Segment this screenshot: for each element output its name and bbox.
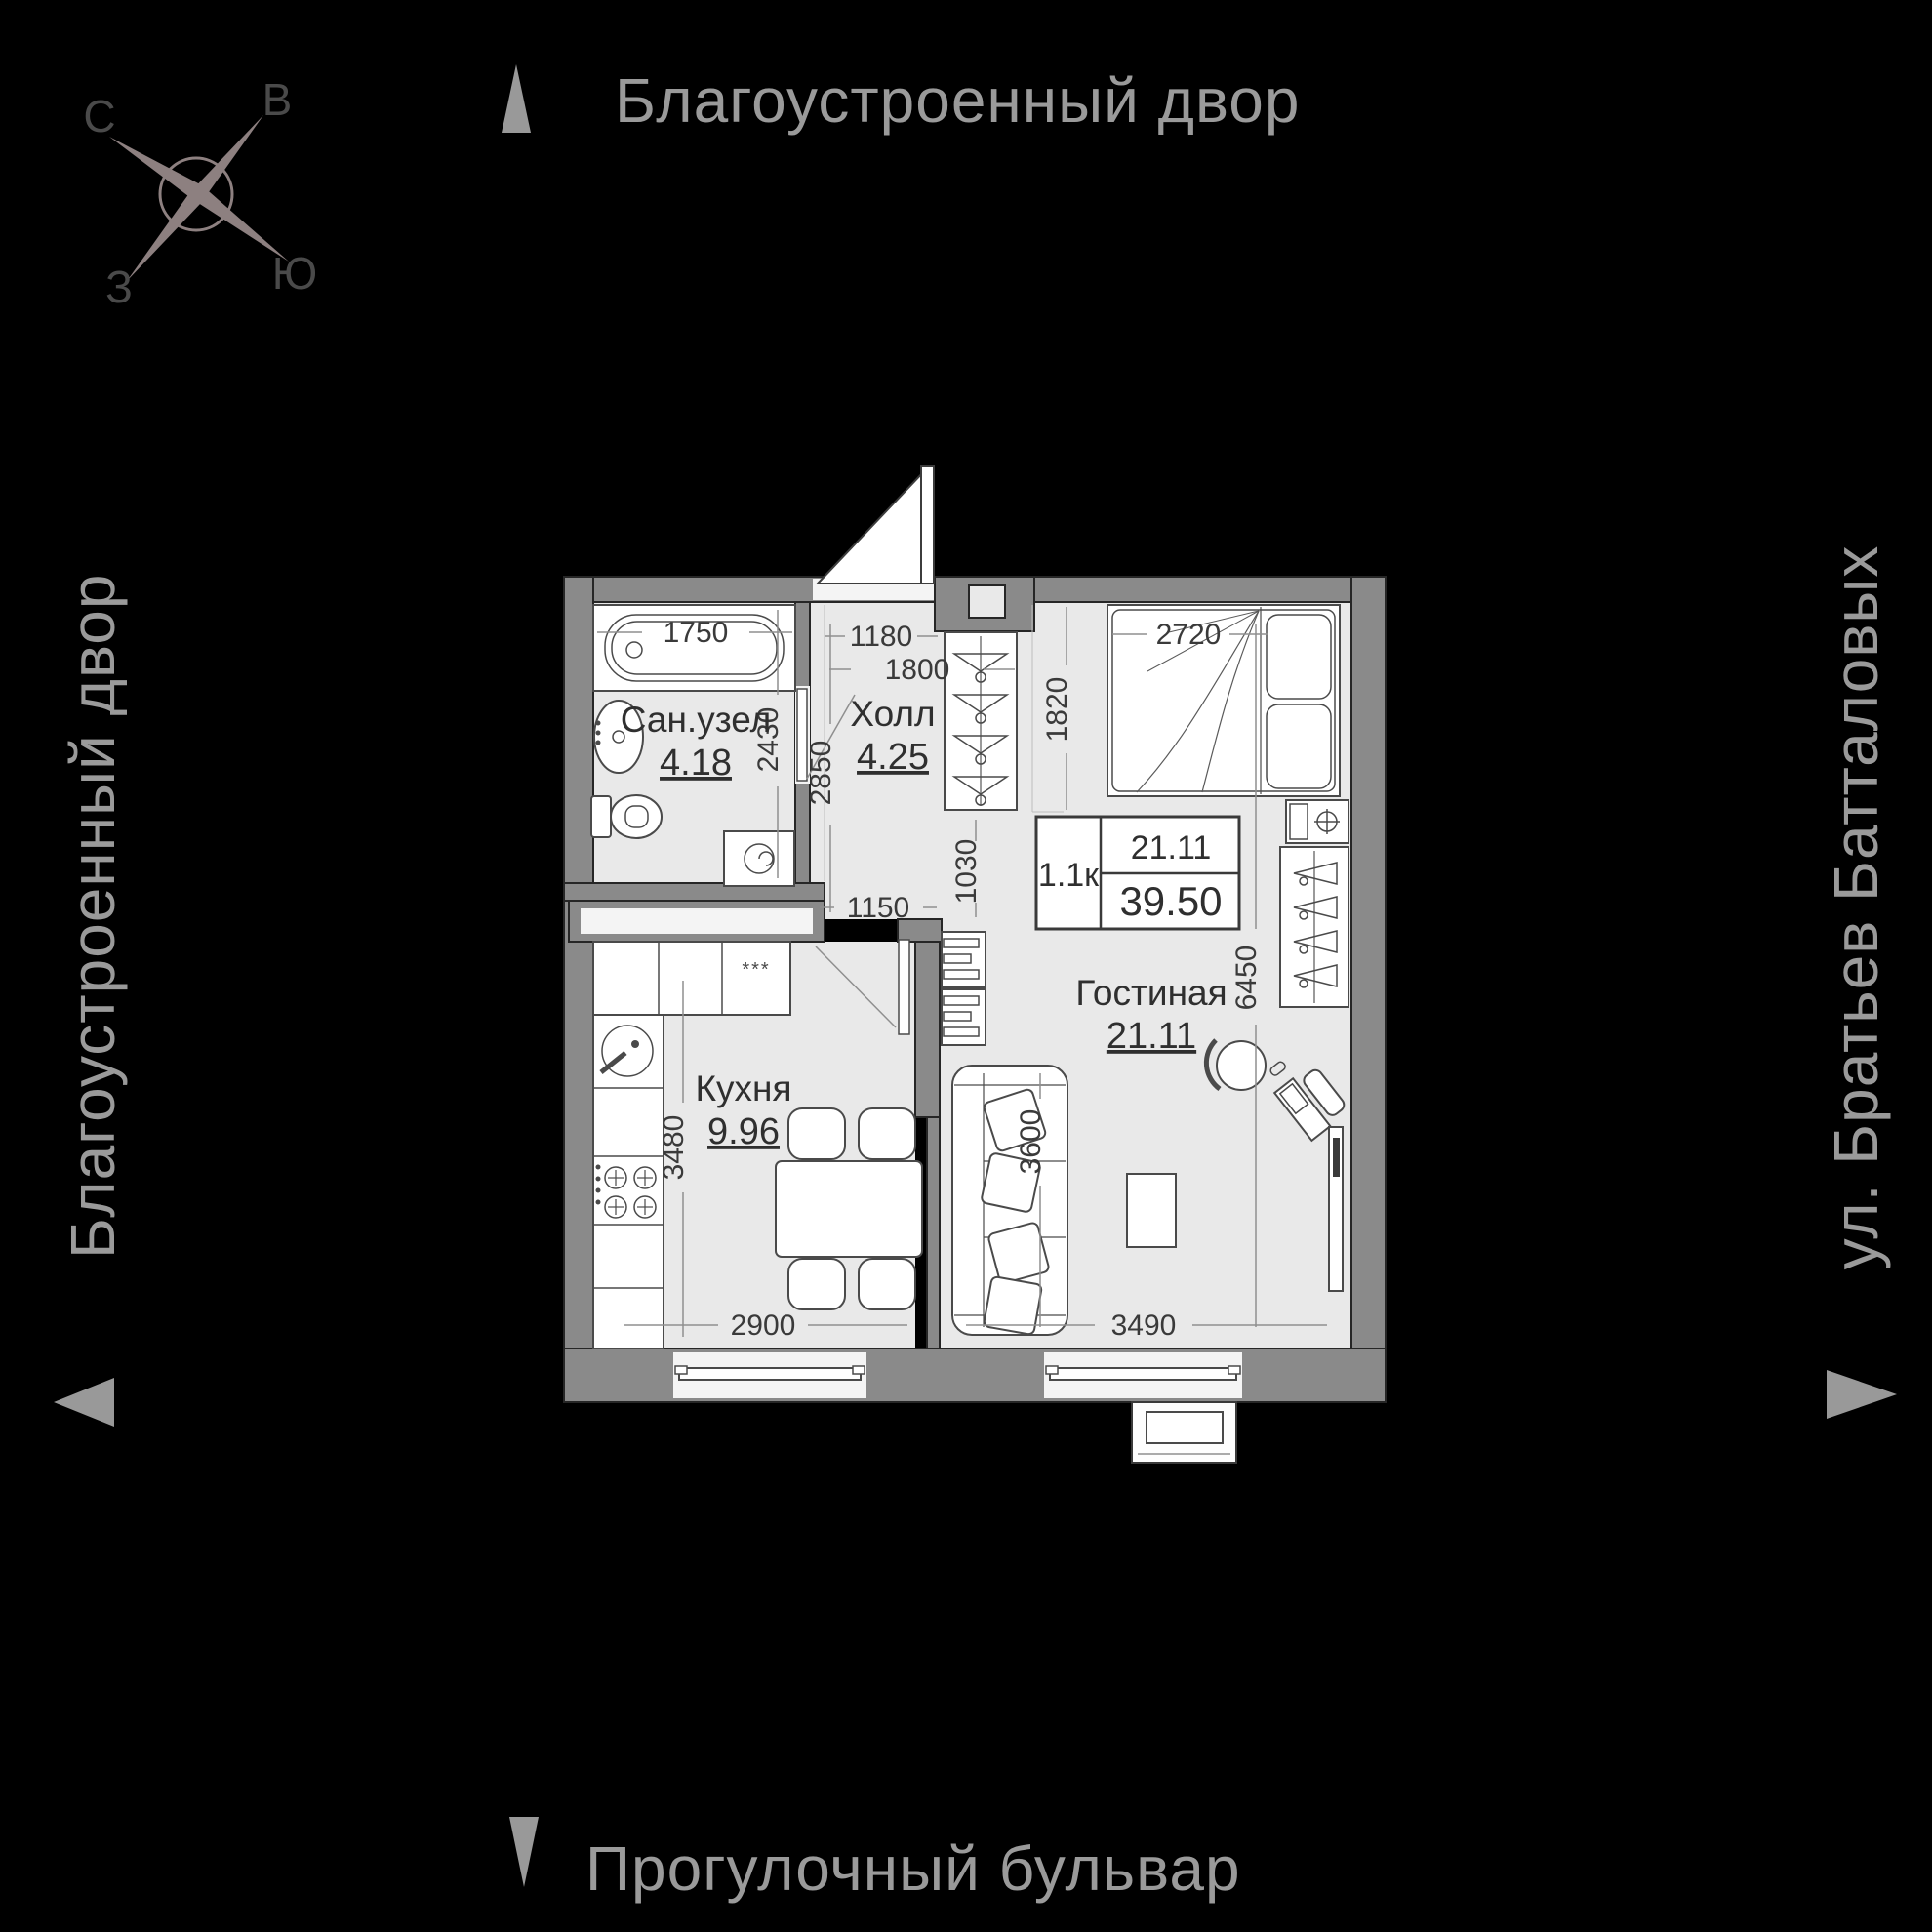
shoe-rack-icon [942,932,986,1045]
toilet-bowl [611,795,662,838]
balcony-inner [1147,1412,1223,1443]
compass-rose: С В З Ю [54,34,346,327]
stove-knob [596,1188,601,1193]
dim-hall-depth: 2850 [805,741,837,806]
apartment-floor-plan: *** [537,434,1429,1483]
sink-tap-dot3 [596,741,601,745]
street-label-right: ул. Братьев Батталовых [1822,537,1890,1278]
kitchen-window-frame [679,1368,861,1380]
kitchen-window-stop-right [853,1366,865,1374]
chair-icon [859,1108,915,1159]
living-area: 21.11 [1107,1016,1196,1057]
hall-wardrobe-icon [945,632,1017,810]
kitchen-window [673,1352,866,1398]
sink-tap-dot2 [596,731,601,736]
tv-screen [1333,1138,1340,1177]
sofa-pillow [984,1276,1042,1335]
bathroom-area: 4.18 [660,743,732,784]
bathroom-name: Сан.узел [621,700,771,740]
kitchen-window-stop-left [675,1366,687,1374]
dim-sofa-length: 3600 [1015,1109,1047,1175]
compass-south-label: Ю [272,248,317,299]
dim-kitchen-depth: 3480 [658,1115,690,1181]
left-triangle-icon [54,1378,114,1427]
compass-east-label: В [262,74,293,125]
kitchen-sink-drain [631,1040,639,1048]
street-label-bottom: Прогулочный бульвар [585,1834,1241,1903]
chair-icon [788,1259,845,1309]
tv-icon [1329,1127,1343,1291]
dim-hall-passage: 1150 [847,892,910,924]
dim-opening: 1030 [950,839,983,905]
washing-machine-icon [724,831,794,886]
dim-hall-entry: 1800 [885,654,950,686]
chair-icon [788,1108,845,1159]
entry-door [818,466,934,584]
wall-left [564,577,593,1402]
stove-knob [596,1165,601,1170]
entry-door-swing [818,470,925,584]
duct-inner [581,908,813,934]
dim-bed-depth: 1820 [1041,677,1073,743]
wall-divider-lower [927,1117,940,1348]
living-window-frame [1050,1368,1236,1380]
street-label-left: Благоустроенный двор [59,576,127,1259]
dim-living-depth: 6450 [1230,946,1263,1011]
wall-right [1351,577,1386,1402]
shaft-niche [969,585,1005,618]
living-window-stop-left [1046,1366,1058,1374]
hall-name: Холл [850,694,935,734]
coffee-table-icon [1127,1174,1176,1247]
bedroom-wardrobe-icon [1280,847,1348,1007]
stove-knob [596,1200,601,1205]
apartment-type: 1.1к [1038,857,1100,894]
kitchen-name: Кухня [695,1068,791,1108]
stove-knob [596,1177,601,1182]
living-name: Гостиная [1075,973,1227,1013]
kitchen-area: 9.96 [707,1111,780,1152]
kitchen-counter-left-col [593,1015,664,1348]
toilet-icon [591,795,662,838]
kitchen-door-leaf [899,940,909,1034]
entry-door-leaf [921,466,934,584]
street-label-top: Благоустроенный двор [615,66,1300,135]
floor-plan-page: С В З Ю Благоустроенный двор Прогулочный… [0,0,1932,1932]
down-triangle-icon [509,1817,539,1887]
dim-kitchen-width: 2900 [731,1309,796,1342]
dim-living-width: 3490 [1111,1309,1177,1342]
living-window-stop-right [1228,1366,1240,1374]
fridge-icon: *** [742,959,770,981]
dim-hall-width: 1180 [850,621,913,653]
toilet-tank [591,796,611,837]
hall-area: 4.25 [857,737,929,778]
balcony [1132,1402,1236,1463]
up-triangle-icon [502,64,531,133]
nightstand-icon [1286,800,1348,843]
compass-north-label: С [83,91,115,141]
compass-west-label: З [105,262,133,312]
apartment-info-box: 1.1к 21.11 39.50 [1036,817,1239,929]
sink-tap-dot1 [596,721,601,726]
compass-needle-ne-sw [127,115,263,281]
right-triangle-icon [1827,1370,1897,1419]
dining-table-icon [776,1161,922,1257]
apartment-living-area: 21.11 [1131,829,1212,866]
sofa-icon [952,1066,1067,1335]
chair-icon [859,1259,915,1309]
dim-bed-width: 2720 [1156,619,1222,651]
dim-bathtub: 1750 [664,617,729,649]
living-window [1044,1352,1242,1398]
wall-divider-upper [915,942,940,1117]
apartment-total-area: 39.50 [1119,878,1222,924]
armchair-seat [1217,1041,1266,1090]
